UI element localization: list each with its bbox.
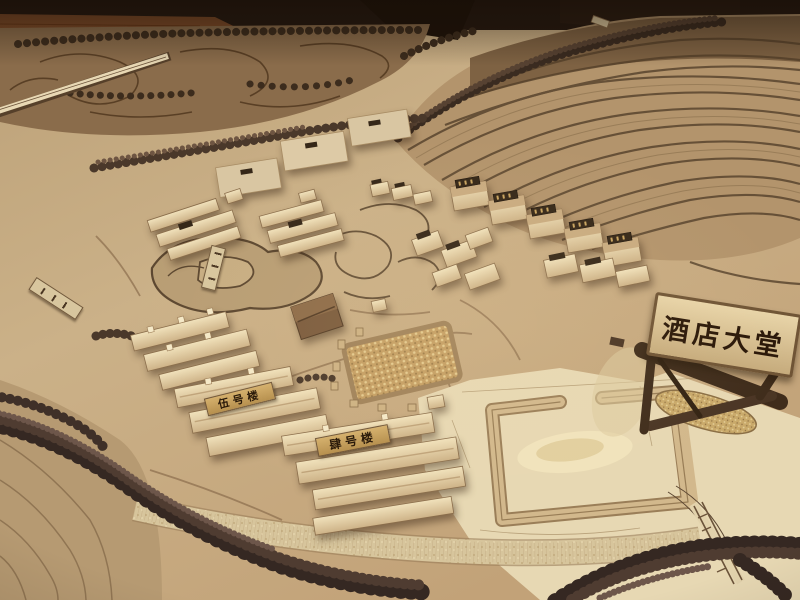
model-photo: 酒店大堂 伍号楼 肆号楼 (0, 0, 800, 600)
